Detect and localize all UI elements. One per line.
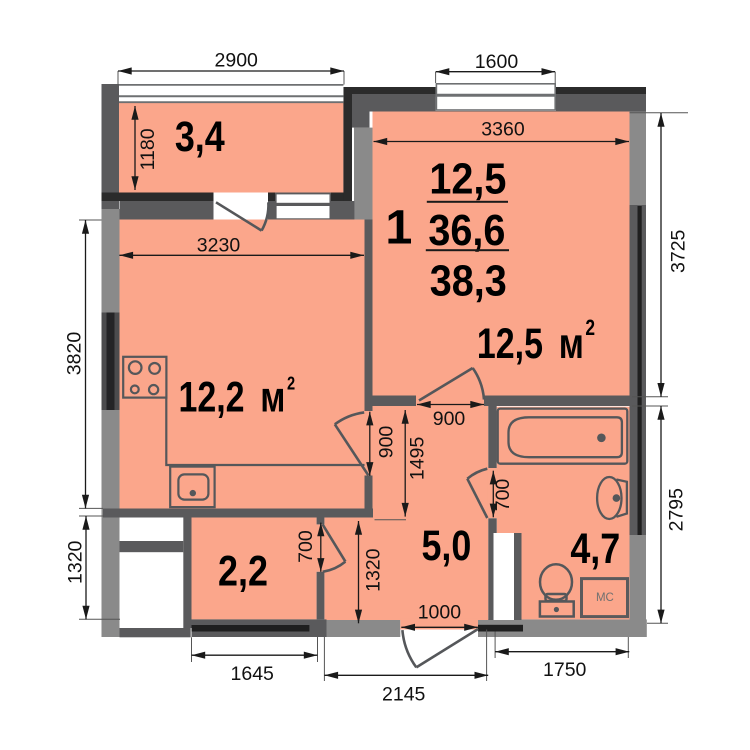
- svg-text:1320: 1320: [65, 540, 87, 584]
- svg-text:1: 1: [385, 201, 412, 255]
- svg-text:3230: 3230: [197, 235, 241, 257]
- svg-text:1750: 1750: [543, 659, 587, 681]
- svg-text:700: 700: [295, 530, 317, 563]
- svg-text:36,6: 36,6: [428, 205, 505, 254]
- svg-text:1320: 1320: [363, 548, 385, 592]
- svg-text:12,5: 12,5: [429, 154, 506, 203]
- svg-text:1600: 1600: [475, 51, 519, 73]
- svg-text:5,0: 5,0: [421, 522, 471, 570]
- svg-text:3820: 3820: [64, 332, 86, 376]
- svg-text:900: 900: [376, 426, 398, 459]
- svg-text:900: 900: [433, 408, 466, 430]
- svg-text:1645: 1645: [231, 663, 275, 685]
- svg-text:3725: 3725: [668, 229, 690, 273]
- svg-text:38,3: 38,3: [430, 256, 507, 305]
- svg-text:4,7: 4,7: [570, 525, 620, 573]
- svg-text:МС: МС: [596, 592, 614, 604]
- svg-text:12,2 м2: 12,2 м2: [178, 373, 295, 422]
- svg-text:12,5 м2: 12,5 м2: [477, 316, 595, 368]
- svg-text:1180: 1180: [137, 128, 159, 170]
- svg-text:1495: 1495: [407, 437, 429, 481]
- svg-text:3,4: 3,4: [175, 113, 225, 161]
- svg-text:2,2: 2,2: [218, 548, 268, 596]
- svg-text:3360: 3360: [481, 119, 525, 141]
- svg-text:2795: 2795: [666, 488, 688, 532]
- svg-text:2145: 2145: [382, 684, 426, 706]
- svg-text:1000: 1000: [418, 601, 462, 623]
- svg-text:700: 700: [492, 479, 514, 512]
- svg-text:2900: 2900: [215, 50, 259, 72]
